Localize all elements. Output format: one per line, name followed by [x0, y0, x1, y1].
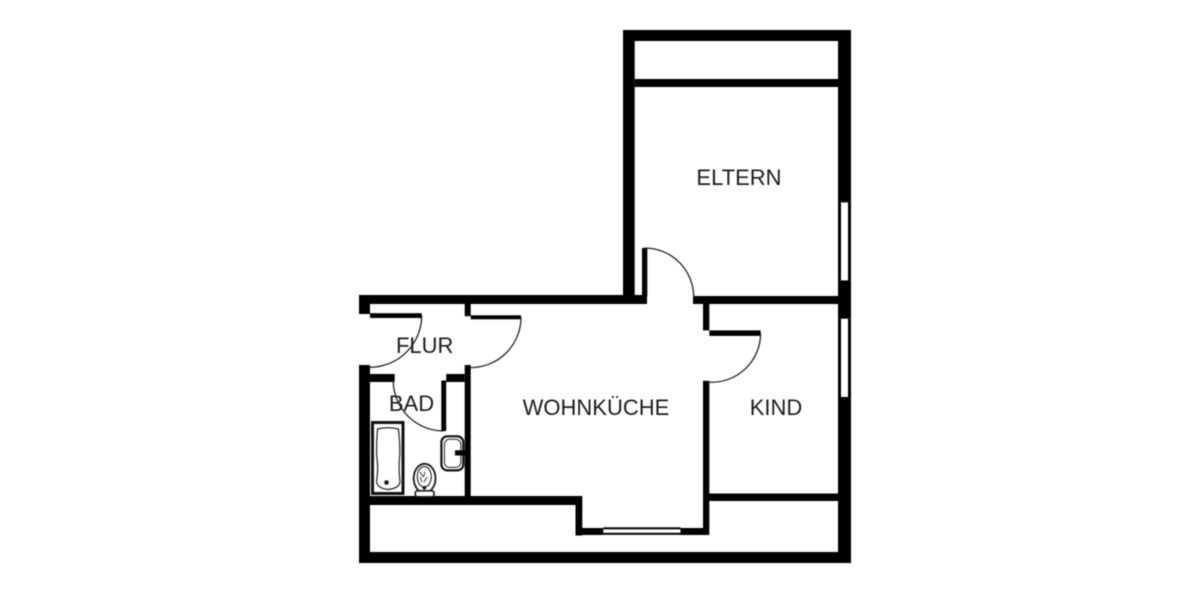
svg-text:KIND: KIND — [750, 395, 803, 420]
svg-text:ELTERN: ELTERN — [696, 165, 781, 190]
svg-text:BAD: BAD — [389, 391, 434, 416]
svg-text:WOHNKÜCHE: WOHNKÜCHE — [523, 395, 670, 420]
svg-text:FLUR: FLUR — [396, 333, 453, 358]
